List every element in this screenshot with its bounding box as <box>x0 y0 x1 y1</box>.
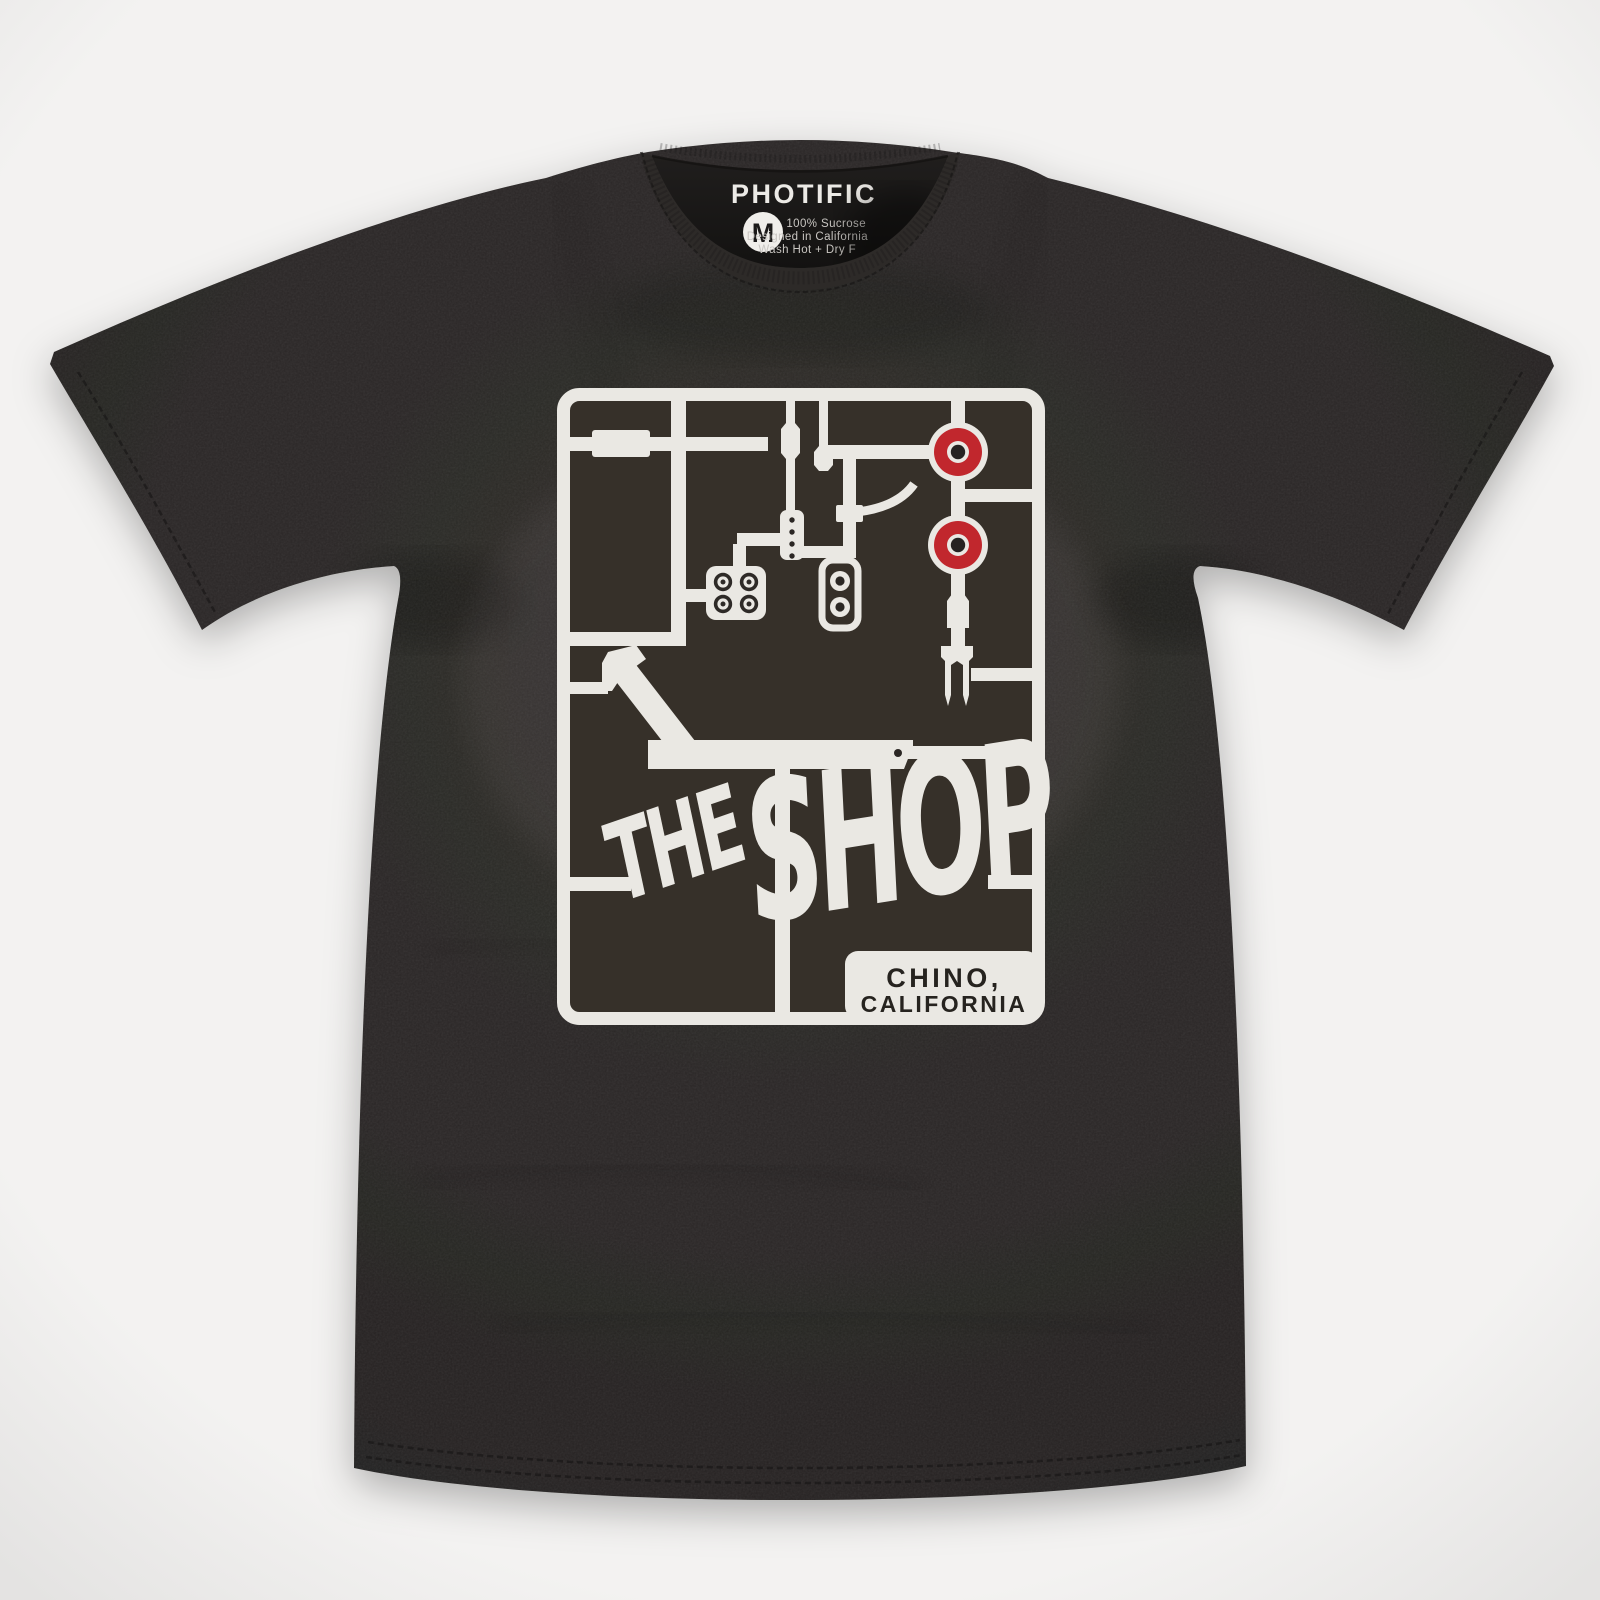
word-shop: SHOP <box>730 697 1072 967</box>
skateboard-wheel-bottom-icon <box>928 515 988 575</box>
sprue-graphic: THE SHOP CHINO, CALIFORNIA <box>563 395 1072 1020</box>
location-state: CALIFORNIA <box>861 991 1028 1017</box>
location-plate: CHINO, CALIFORNIA <box>845 951 1039 1019</box>
location-city: CHINO, <box>886 963 1002 993</box>
brand-text: PHOTIFIC <box>731 179 877 209</box>
bearing-rail-icon <box>780 510 804 560</box>
svg-text:Wash Hot + Dry F: Wash Hot + Dry F <box>758 244 856 256</box>
product-photo: PHOTIFIC M 100% Sucrose Designed in Cali… <box>0 0 1600 1600</box>
bolt-plate-icon <box>706 566 766 620</box>
truck-part-icon <box>822 550 858 628</box>
wheel-connector <box>951 479 965 519</box>
